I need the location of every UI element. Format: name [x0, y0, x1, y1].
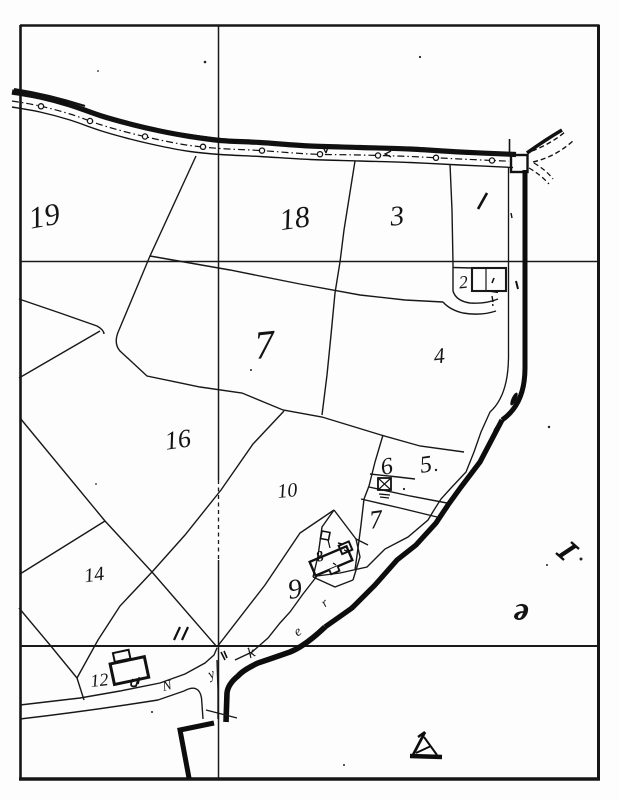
svg-text:N: N [160, 678, 174, 695]
svg-text:y: y [204, 666, 218, 683]
svg-text:18: 18 [278, 200, 312, 237]
svg-text:16: 16 [163, 423, 193, 455]
svg-text:7: 7 [252, 321, 279, 368]
svg-text:7: 7 [367, 504, 385, 535]
svg-text:3: 3 [388, 200, 406, 232]
svg-text:9: 9 [286, 573, 304, 606]
svg-text:14: 14 [83, 563, 106, 588]
svg-text:19: 19 [26, 196, 63, 236]
svg-text:12: 12 [89, 669, 109, 691]
svg-text:e: e [512, 596, 530, 634]
svg-text:e: e [291, 624, 305, 640]
svg-text:10: 10 [276, 479, 298, 503]
svg-text:6: 6 [379, 453, 395, 481]
svg-text:k: k [245, 645, 258, 662]
svg-text:2: 2 [458, 272, 469, 293]
svg-text:r: r [318, 594, 332, 610]
svg-text:5: 5 [418, 451, 434, 478]
svg-text:4: 4 [432, 343, 446, 369]
